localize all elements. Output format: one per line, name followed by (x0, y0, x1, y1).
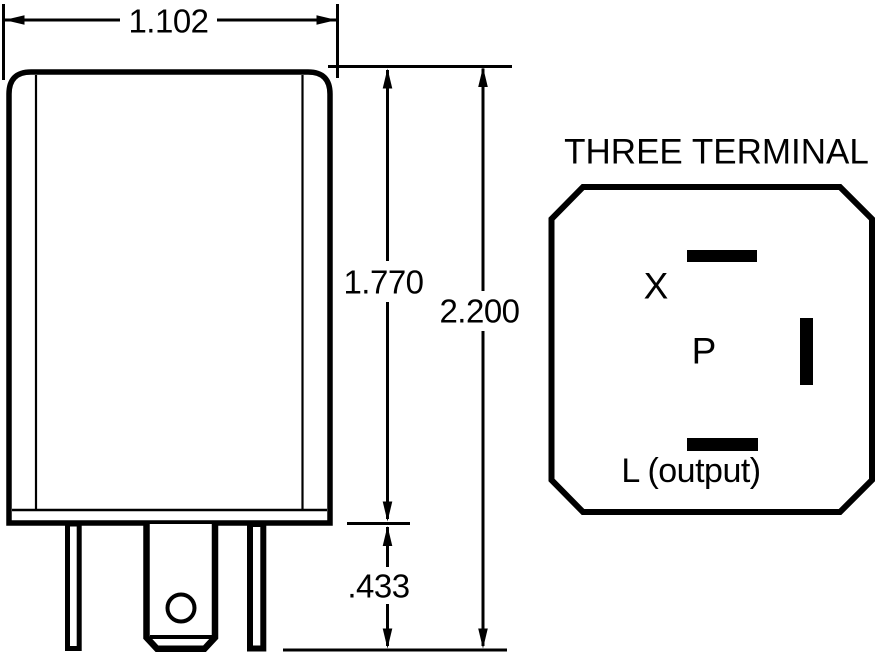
left-terminal-pin (68, 524, 80, 649)
arrow-right-icon (317, 15, 337, 25)
arrow-down-icon (383, 502, 393, 522)
center-terminal-pin (147, 524, 216, 649)
arrow-up-icon (383, 69, 393, 89)
center-pin-mounting-hole (168, 595, 195, 622)
terminal-pinout-view: THREE TERMINAL X P L (output) (552, 133, 873, 513)
dimension-terminal-length: .433 (347, 526, 409, 649)
arrow-down-icon (478, 629, 488, 649)
arrow-left-icon (5, 15, 25, 25)
relay-side-view (9, 72, 330, 649)
relay-outline-drawing: 1.102 1.770 2.200 .433 THREE TERMINAL (0, 0, 876, 654)
width-dimension-value: 1.102 (128, 3, 208, 40)
right-terminal-pin (250, 524, 263, 649)
terminal-x-slot (687, 250, 757, 262)
terminal-l-slot (687, 438, 758, 451)
terminal-x-label: X (644, 266, 669, 307)
terminal-p-slot (800, 318, 813, 385)
arrow-down-icon (383, 629, 393, 649)
technical-drawing-canvas: 1.102 1.770 2.200 .433 THREE TERMINAL (0, 0, 876, 654)
terminal-p-label: P (692, 331, 717, 372)
terminal-l-label: L (output) (621, 452, 760, 490)
overall-height-dimension-value: 2.200 (439, 293, 519, 330)
terminal-view-title: THREE TERMINAL (564, 133, 869, 172)
body-height-dimension-value: 1.770 (343, 264, 423, 301)
arrow-up-icon (383, 526, 393, 546)
dimension-width: 1.102 (4, 3, 338, 81)
relay-body-outline (9, 72, 330, 523)
terminal-length-dimension-value: .433 (347, 568, 409, 605)
dimension-body-height: 1.770 (343, 69, 423, 522)
arrow-up-icon (478, 67, 488, 87)
dimension-overall-height: 2.200 (439, 67, 519, 649)
